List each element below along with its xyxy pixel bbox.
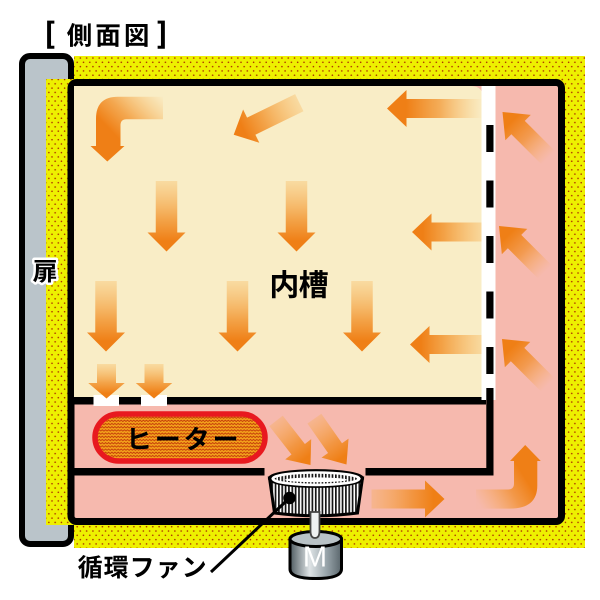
svg-text:M: M xyxy=(303,542,327,574)
